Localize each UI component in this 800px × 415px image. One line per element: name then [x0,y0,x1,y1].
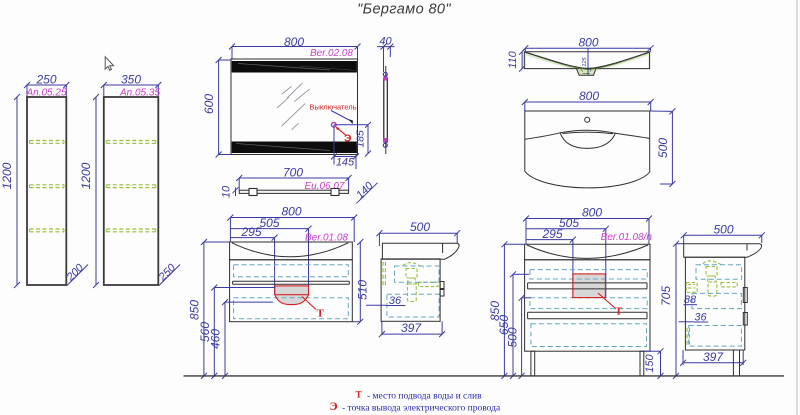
svg-text:88: 88 [684,294,697,306]
svg-text:145: 145 [336,157,355,169]
svg-text:36: 36 [389,295,402,307]
svg-text:Т: Т [317,308,325,320]
svg-text:Выключатель: Выключатель [310,103,357,112]
svg-text:500: 500 [410,220,430,234]
svg-text:500: 500 [506,327,520,347]
svg-text:185: 185 [355,130,367,148]
svg-text:Т: Т [356,390,363,400]
svg-text:350: 350 [121,73,141,87]
svg-text:510: 510 [356,280,370,300]
svg-text:800: 800 [281,205,301,219]
svg-text:500: 500 [713,222,733,236]
svg-text:150: 150 [644,353,656,372]
svg-text:125: 125 [582,56,588,66]
svg-text:505: 505 [259,216,279,230]
svg-text:460: 460 [209,329,223,349]
svg-text:800: 800 [582,206,602,220]
svg-text:250: 250 [35,73,56,87]
svg-text:397: 397 [703,350,724,364]
svg-text:1200: 1200 [79,162,93,189]
svg-text:10: 10 [221,185,233,198]
svg-text:36: 36 [694,312,707,324]
svg-text:800: 800 [579,89,599,103]
svg-text:Э: Э [330,399,338,413]
svg-text:Ber.02.08: Ber.02.08 [310,48,353,59]
svg-text:140: 140 [354,179,376,201]
svg-text:705: 705 [659,286,673,306]
svg-text:800: 800 [578,36,598,50]
svg-text:850: 850 [188,300,202,320]
svg-text:Ber.01.08/n: Ber.01.08/n [601,232,653,243]
svg-text:Э: Э [344,132,352,144]
svg-text:600: 600 [202,94,216,114]
svg-text:- место подвода воды и слив: - место подвода воды и слив [367,391,482,401]
svg-text:700: 700 [283,166,303,180]
svg-text:110: 110 [507,50,519,68]
svg-text:Т: Т [615,306,623,318]
svg-text:250: 250 [156,261,179,284]
svg-text:200: 200 [64,261,87,284]
svg-text:295: 295 [240,225,261,239]
svg-text:- точка вывода электрического: - точка вывода электрического провода [342,403,501,413]
svg-text:500: 500 [656,138,670,158]
svg-text:397: 397 [401,321,422,335]
svg-text:"Бергамо 80": "Бергамо 80" [357,2,451,18]
svg-text:1200: 1200 [0,162,14,189]
svg-text:295: 295 [541,227,562,241]
